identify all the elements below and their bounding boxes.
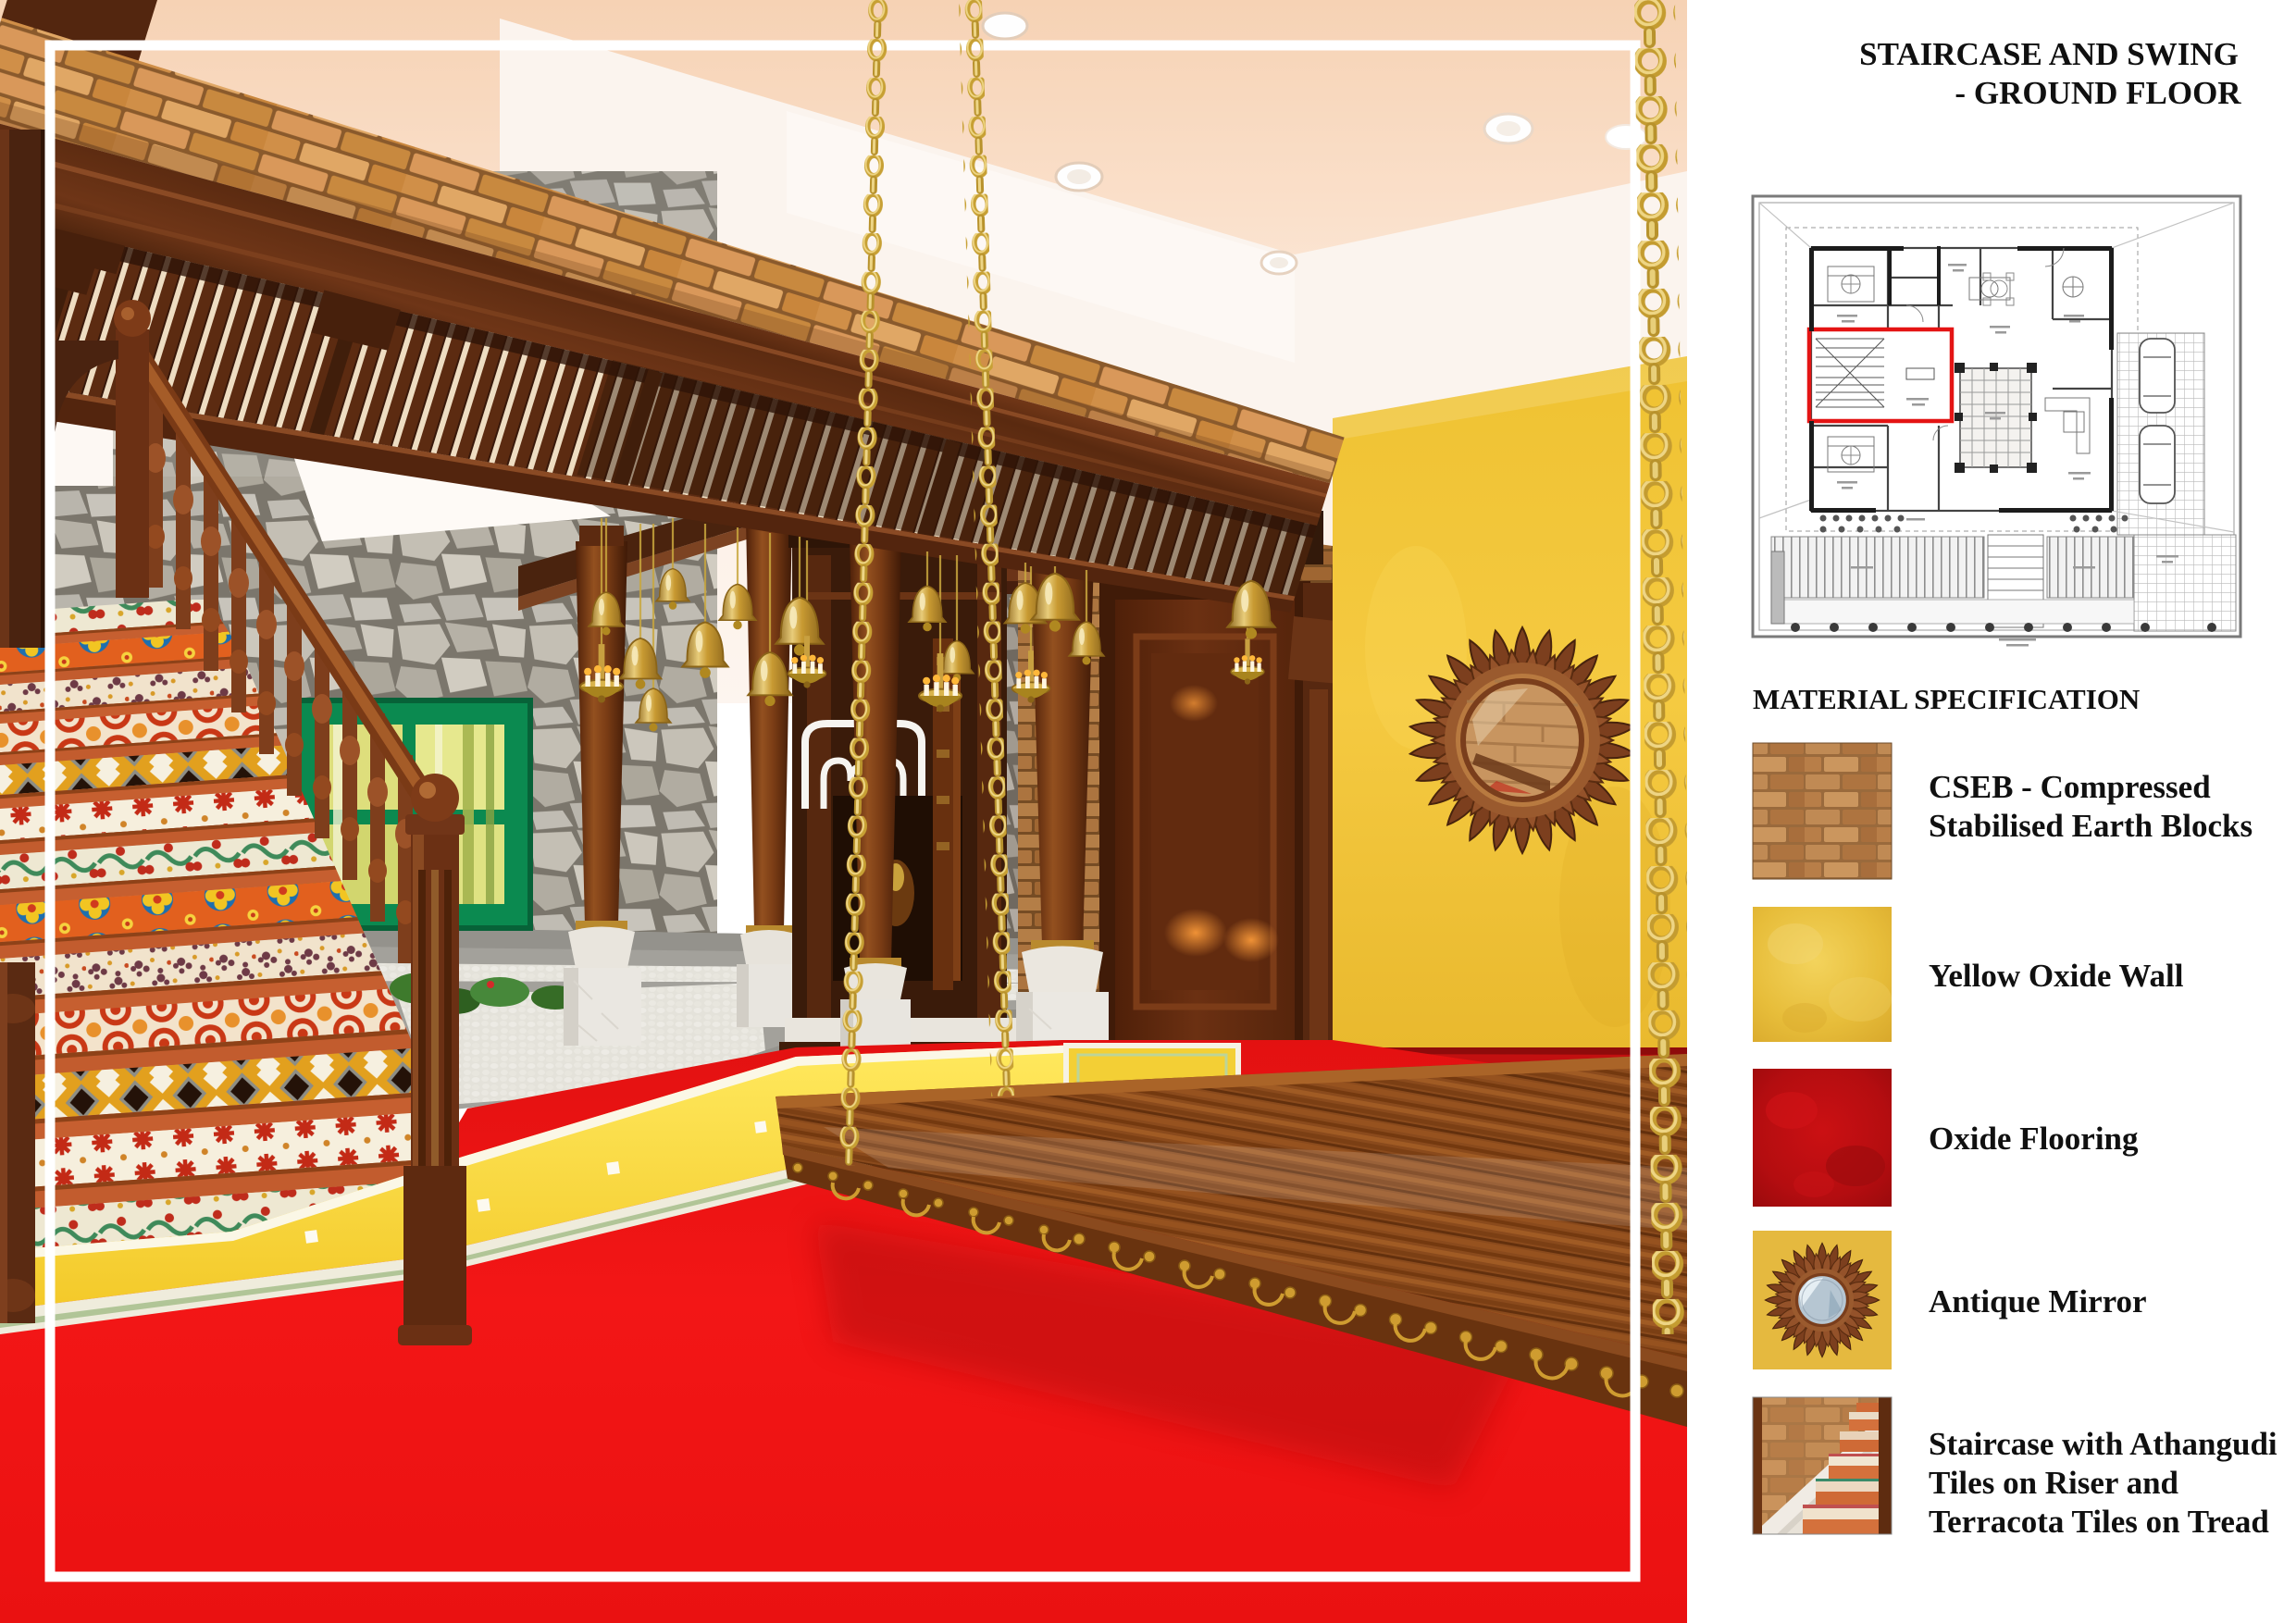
svg-text:Stabilised Earth Blocks: Stabilised Earth Blocks — [1929, 808, 2253, 844]
svg-text:Staircase with Athangudi: Staircase with Athangudi — [1929, 1426, 2277, 1462]
svg-text:MATERIAL SPECIFICATION: MATERIAL SPECIFICATION — [1753, 683, 2140, 715]
svg-text:- GROUND FLOOR: - GROUND FLOOR — [1955, 75, 2241, 111]
svg-text:CSEB - Compressed: CSEB - Compressed — [1929, 769, 2211, 805]
svg-text:Tiles on Riser and: Tiles on Riser and — [1929, 1465, 2179, 1501]
svg-text:Terracota Tiles on Tread: Terracota Tiles on Tread — [1929, 1504, 2269, 1540]
svg-text:Yellow Oxide Wall: Yellow Oxide Wall — [1929, 958, 2184, 994]
svg-text:Oxide Flooring: Oxide Flooring — [1929, 1121, 2139, 1157]
svg-text:STAIRCASE AND SWING: STAIRCASE AND SWING — [1859, 36, 2239, 72]
svg-text:Antique Mirror: Antique Mirror — [1929, 1283, 2147, 1319]
